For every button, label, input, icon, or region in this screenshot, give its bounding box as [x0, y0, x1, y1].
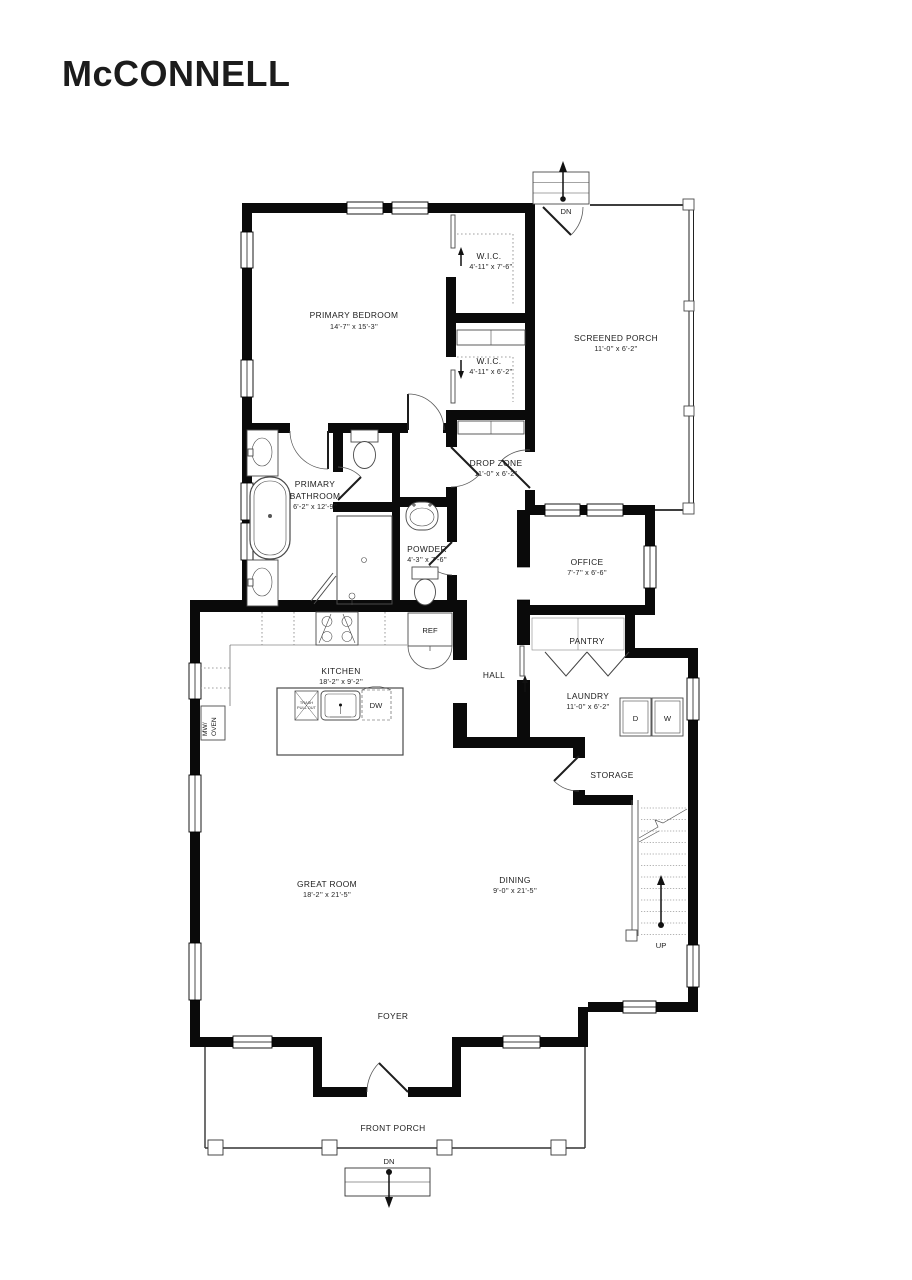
label-dw: DW — [370, 701, 383, 710]
vanity-sink-top — [247, 430, 278, 476]
room-dims-dining: 9'-0'' x 21'-5'' — [493, 886, 537, 895]
window — [644, 546, 656, 588]
room-label-foyer: FOYER — [378, 1011, 409, 1021]
label-dn-entry: DN — [384, 1157, 395, 1166]
room-label-storage: STORAGE — [590, 770, 633, 780]
room-label-drop-zone: DROP ZONE — [470, 458, 523, 468]
floor-plan-canvas: McCONNELL PRIMARY BEDROOM 14'-7'' x 15'-… — [0, 0, 912, 1280]
vanity-sink-bottom — [247, 560, 278, 606]
window — [545, 504, 580, 516]
dropzone-bench — [458, 421, 524, 434]
room-label-wic-2: W.I.C. — [477, 356, 502, 366]
window — [687, 678, 699, 720]
laundry-pocket-door — [520, 646, 524, 676]
wic2-arrow — [458, 360, 464, 379]
shower — [311, 516, 392, 605]
toilet-powder — [412, 567, 438, 605]
room-label-primary-bedroom: PRIMARY BEDROOM — [310, 310, 399, 320]
pantry-bifold-doors — [545, 652, 629, 676]
room-label-kitchen: KITCHEN — [321, 666, 360, 676]
room-label-great-room: GREAT ROOM — [297, 879, 357, 889]
label-up: UP — [656, 941, 667, 950]
label-dryer: D — [633, 714, 639, 723]
front-steps — [345, 1168, 430, 1208]
room-label-pantry: PANTRY — [569, 636, 604, 646]
room-dims-powder: 4'-3'' x 7'-6'' — [407, 555, 447, 564]
stairs-up — [626, 800, 687, 941]
porch-down-steps — [533, 161, 589, 204]
bathroom-fixtures — [247, 430, 392, 606]
window — [241, 232, 253, 268]
label-ref: REF — [422, 626, 438, 635]
label-dn-porch: DN — [561, 207, 572, 216]
powder-sink — [406, 502, 438, 530]
bathroom-door — [290, 431, 328, 469]
stairs-up-arrow — [657, 875, 665, 928]
room-dims-screened-porch: 11'-0'' x 6'-2'' — [594, 344, 638, 353]
room-label-office: OFFICE — [571, 557, 604, 567]
bedroom-entry-door — [408, 394, 444, 430]
window — [189, 943, 201, 1000]
bathtub — [250, 477, 290, 559]
label-washer: W — [664, 714, 672, 723]
window — [687, 945, 699, 987]
room-dims-drop-zone: 11'-0'' x 6'-2'' — [474, 469, 518, 478]
room-label-dining: DINING — [499, 875, 530, 885]
refrigerator — [408, 613, 452, 669]
window — [241, 360, 253, 397]
room-dims-wic-1: 4'-11'' x 7'-6'' — [469, 262, 513, 271]
toilet-primary — [351, 430, 378, 469]
window — [347, 202, 383, 214]
room-dims-kitchen: 18'-2'' x 9'-2'' — [319, 677, 363, 686]
laundry-appliances — [620, 698, 683, 736]
label-trash-2: PULL OUT — [297, 705, 317, 710]
room-label-hall: HALL — [483, 670, 505, 680]
room-label-primary-bathroom-2: BATHROOM — [290, 491, 341, 501]
room-label-powder: POWDER — [407, 544, 447, 554]
room-dims-laundry: 11'-0'' x 6'-2'' — [566, 702, 610, 711]
front-door — [367, 1063, 408, 1092]
wic2-pocket-door — [451, 370, 455, 403]
window — [392, 202, 428, 214]
plan-title: McCONNELL — [62, 53, 291, 94]
office-cased-opening — [517, 567, 530, 600]
room-label-wic-1: W.I.C. — [477, 251, 502, 261]
room-label-laundry: LAUNDRY — [567, 691, 609, 701]
room-label-front-porch: FRONT PORCH — [360, 1123, 425, 1133]
kitchen-island — [277, 687, 403, 756]
floor-plan-page: McCONNELL PRIMARY BEDROOM 14'-7'' x 15'-… — [0, 0, 912, 1280]
room-label-screened-porch: SCREENED PORCH — [574, 333, 658, 343]
room-dims-primary-bedroom: 14'-7'' x 15'-3'' — [330, 322, 378, 331]
label-mw-2: OVEN — [211, 717, 218, 736]
island-sink — [321, 691, 360, 720]
range — [316, 612, 358, 645]
room-dims-wic-2: 4'-11'' x 6'-2'' — [469, 367, 513, 376]
label-mw-1: MW/ — [202, 722, 209, 736]
window — [503, 1036, 540, 1048]
window — [233, 1036, 272, 1048]
window — [189, 775, 201, 832]
wic1-arrow — [458, 247, 464, 266]
window — [587, 504, 623, 516]
window — [623, 1001, 656, 1013]
window — [189, 663, 201, 699]
doors — [290, 207, 583, 1092]
room-label-primary-bathroom-1: PRIMARY — [295, 479, 336, 489]
pantry-fixtures — [532, 618, 629, 676]
room-dims-primary-bathroom: 6'-2'' x 12'-9'' — [293, 502, 337, 511]
wic1-pocket-door — [451, 215, 455, 248]
storage-door — [554, 756, 579, 791]
room-dims-great-room: 18'-2'' x 21'-5'' — [303, 890, 351, 899]
room-dims-office: 7'-7'' x 6'-6'' — [567, 568, 607, 577]
